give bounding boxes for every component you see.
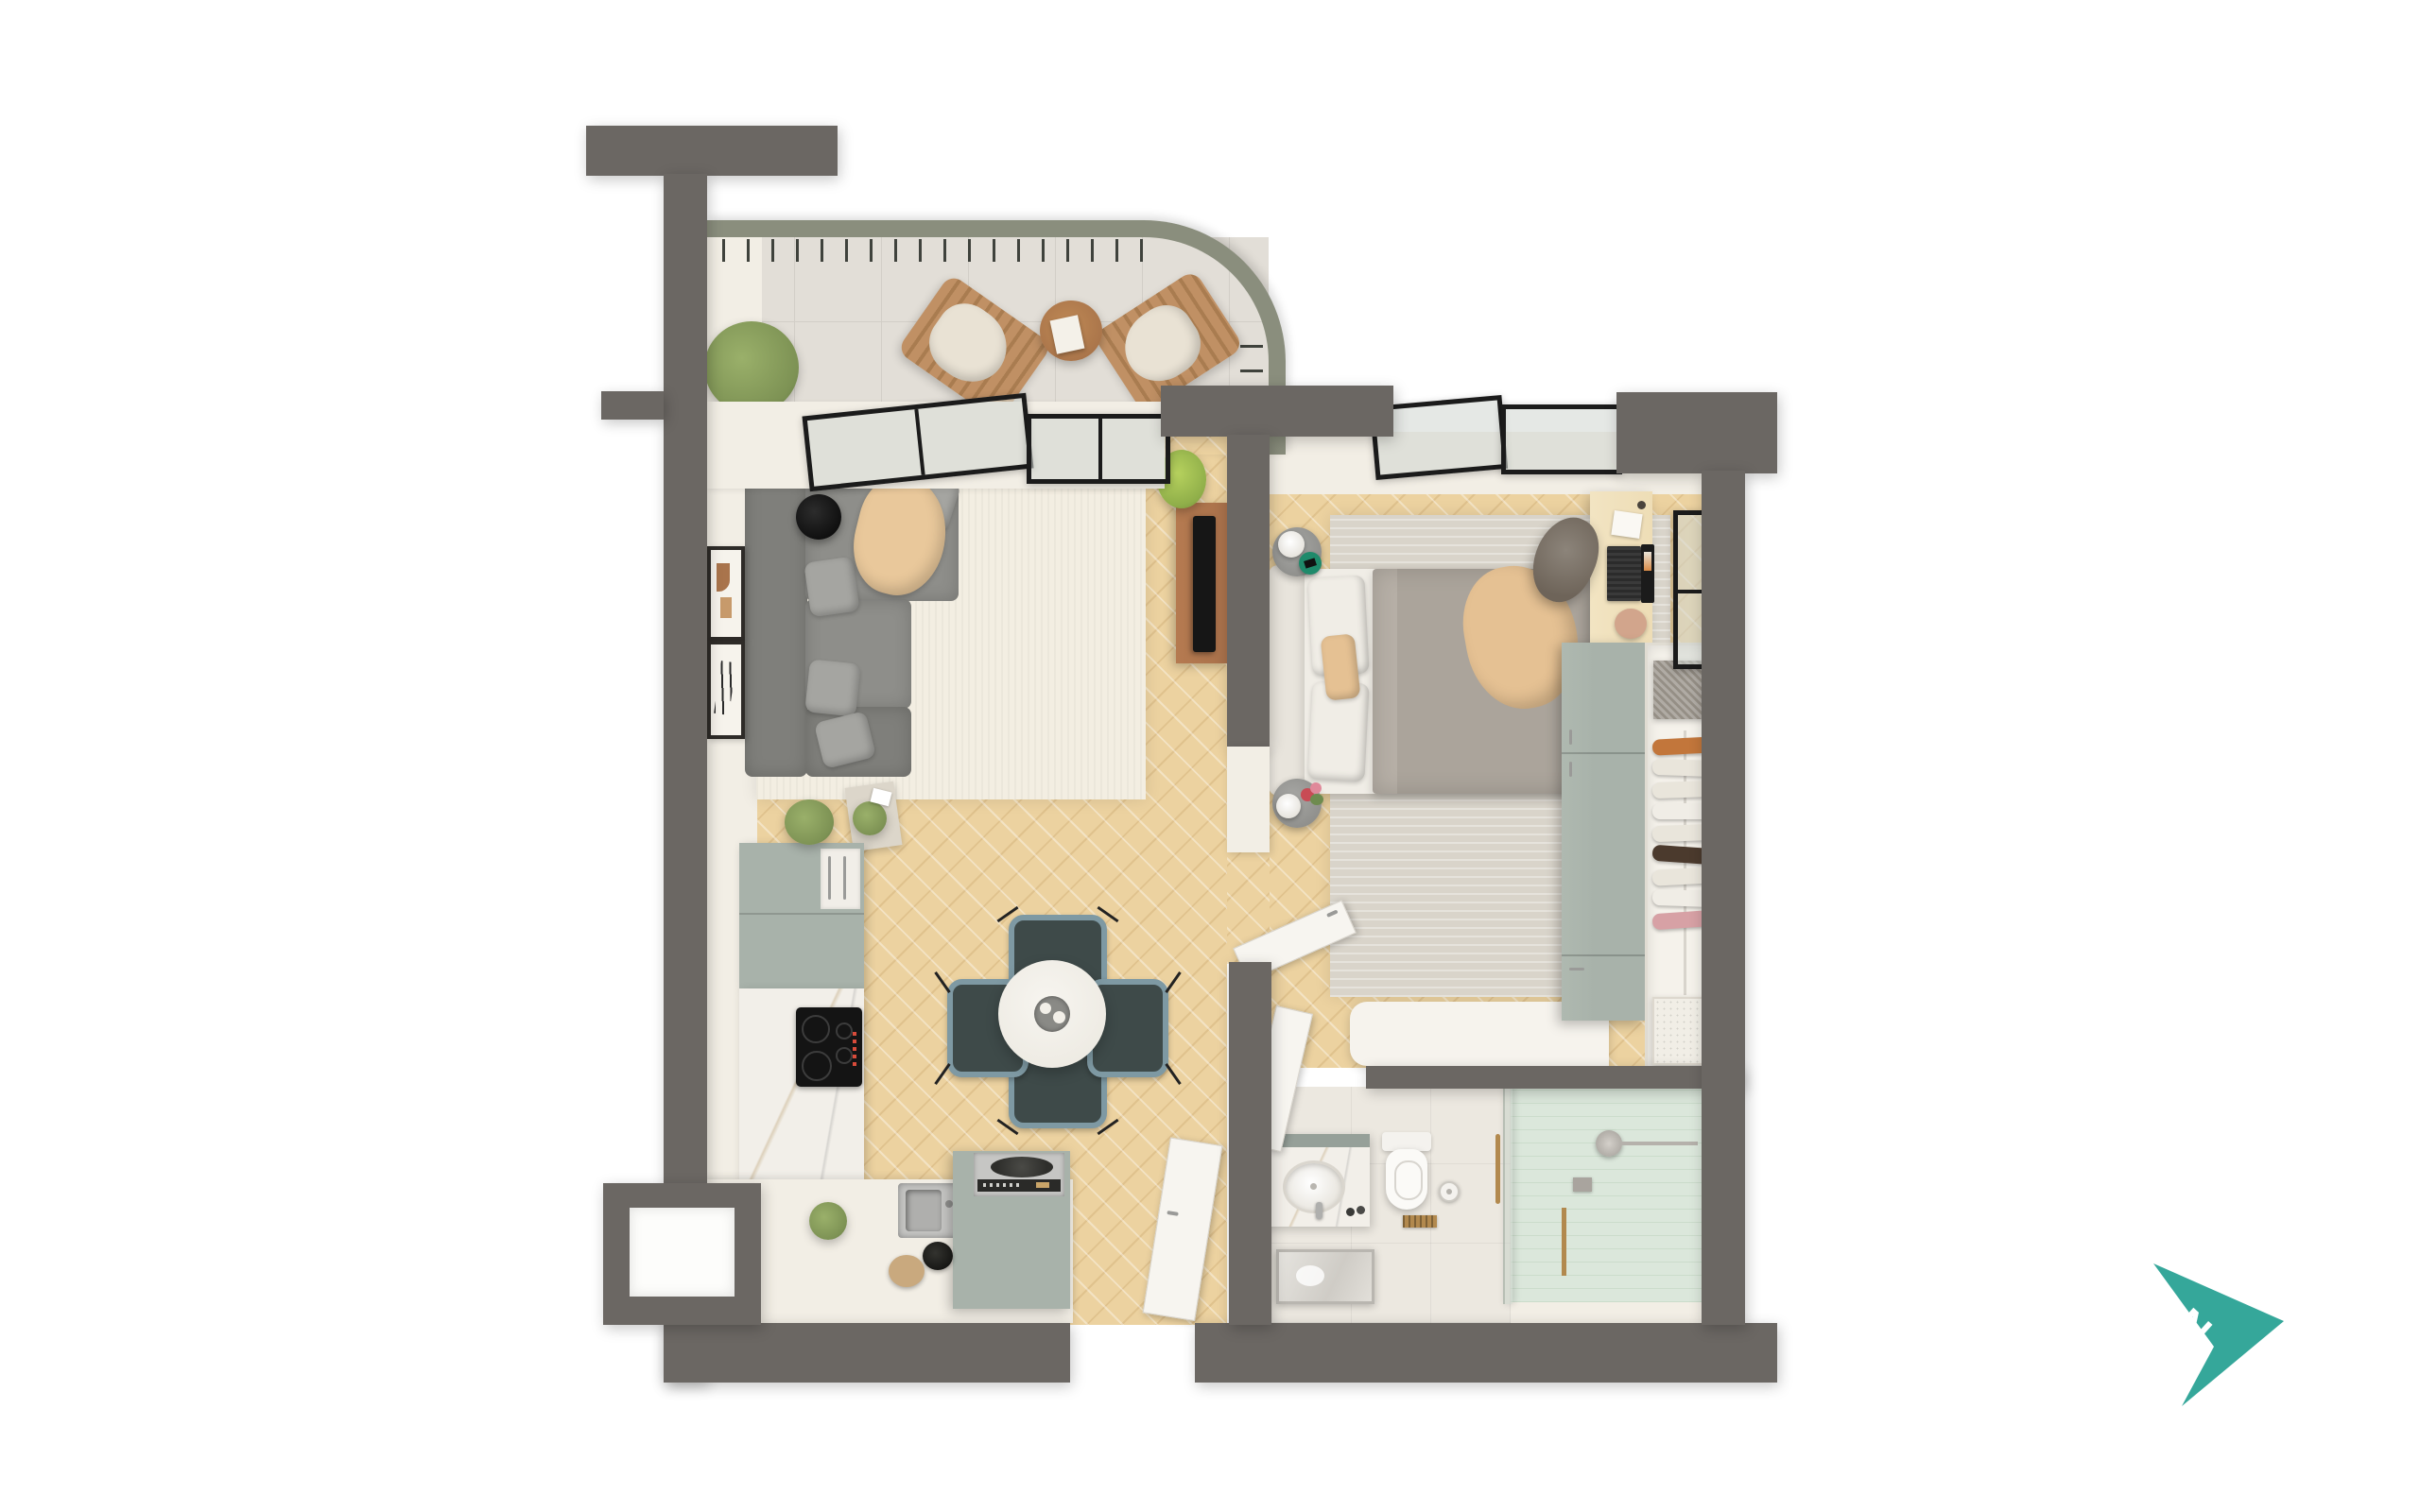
desk-grommet (1637, 501, 1646, 509)
shower-brass-pipe (1562, 1208, 1566, 1276)
toilet-seat-line (1394, 1160, 1423, 1200)
shower-control-panel (1573, 1177, 1592, 1192)
wood-handle (1036, 1182, 1049, 1188)
wall-divider-lower-face (1227, 747, 1270, 852)
vanity-sink (1283, 1160, 1345, 1213)
balcony-shrub-plant (704, 321, 799, 414)
kitchen-decor-plant (785, 799, 834, 845)
control-buttons (983, 1183, 1021, 1187)
cabinet-seam (1562, 954, 1645, 956)
shower-glass-screen (1503, 1085, 1512, 1304)
kitchen-island (953, 1151, 1070, 1309)
wall-top-left-cap (586, 126, 838, 176)
wall-divider-stem (1227, 435, 1270, 747)
sofa-pillow (804, 659, 861, 716)
toilet (1382, 1132, 1431, 1211)
black-bowl (923, 1242, 953, 1270)
cabinet-seam (1562, 752, 1645, 754)
shower-arm (1620, 1142, 1698, 1145)
sofa-pillow (804, 557, 860, 618)
flower (1310, 782, 1322, 794)
bathroom-mirror (1276, 1249, 1374, 1304)
bedroom-window-pane (1501, 404, 1622, 474)
living-window-pane (1027, 414, 1170, 484)
cooker-control-band (977, 1179, 1061, 1192)
desk-pad (1615, 609, 1647, 639)
black-side-table (796, 494, 841, 540)
art-shape (720, 597, 732, 618)
book-on-table (1050, 315, 1085, 353)
wall-mid-cap (1161, 386, 1393, 437)
induction-cooktop (796, 1007, 862, 1087)
sink-bowl (906, 1190, 942, 1231)
wall-west-tab (601, 391, 664, 420)
wall-art-frame (707, 546, 745, 641)
burner (802, 1015, 830, 1043)
cup (1040, 1003, 1051, 1014)
burner (802, 1051, 832, 1081)
round-cutting-board (889, 1255, 925, 1287)
cabinet-seam (739, 913, 864, 915)
north-arrow-icon: N (2144, 1249, 2300, 1419)
phone (1304, 558, 1317, 568)
burner (836, 1047, 853, 1064)
floor-drain-plate (1403, 1215, 1437, 1228)
shower-glass-handle (1495, 1134, 1500, 1204)
tan-accent-pillow (1321, 633, 1361, 700)
toilet-paper-holder (1439, 1181, 1460, 1202)
art-shape (717, 563, 730, 592)
shower-head (1596, 1130, 1622, 1157)
table-lamp (1278, 531, 1305, 558)
table-lamp (1276, 794, 1301, 818)
notebook (1611, 510, 1642, 539)
wall-bottom-left (664, 1323, 1070, 1383)
balcony-round-table (1040, 301, 1102, 361)
green-tray-with-phone (1299, 552, 1322, 575)
serving-tray (1034, 996, 1070, 1032)
railing-balusters-top (722, 239, 1144, 262)
burner (836, 1022, 853, 1039)
sink-faucet (945, 1200, 953, 1208)
kitchen-herb-plant (809, 1202, 847, 1240)
laptop-screen (1641, 544, 1654, 603)
cup (1053, 1011, 1065, 1023)
art-lines (714, 661, 736, 715)
wall-bottom-right (1195, 1323, 1777, 1383)
bed-headboard (1269, 565, 1306, 796)
lightwell-opening (630, 1208, 735, 1297)
toilet-bowl (1386, 1149, 1427, 1210)
wall-art-frame (707, 641, 745, 739)
flower-leaves (1310, 794, 1323, 805)
cooker-plate (991, 1157, 1053, 1177)
shower-curb (1511, 1302, 1702, 1323)
toiletry-bottles (1346, 1206, 1367, 1221)
screen-content (1644, 552, 1651, 571)
floor-plan-render: N (0, 0, 2420, 1512)
vanity-faucet (1316, 1202, 1322, 1219)
wall-east (1702, 471, 1745, 1325)
white-cabinet-doors (821, 849, 860, 909)
flower-bouquet (1301, 782, 1325, 807)
sink-drain (1310, 1183, 1317, 1190)
mirror-reflection (1296, 1265, 1324, 1286)
wardrobe-cabinet (1562, 643, 1645, 1021)
tv (1193, 516, 1216, 652)
kitchen-upper-cabinets (739, 843, 864, 988)
laptop-keyboard (1607, 546, 1641, 601)
cooktop-controls (853, 1028, 856, 1066)
wall-bathroom-north (1366, 1066, 1744, 1089)
toilet-tank (1382, 1132, 1431, 1151)
side-table-plant (853, 801, 887, 835)
shower-floor (1511, 1087, 1702, 1302)
wall-top-right-block (1616, 392, 1777, 473)
wall-bathroom-west (1229, 962, 1271, 1325)
